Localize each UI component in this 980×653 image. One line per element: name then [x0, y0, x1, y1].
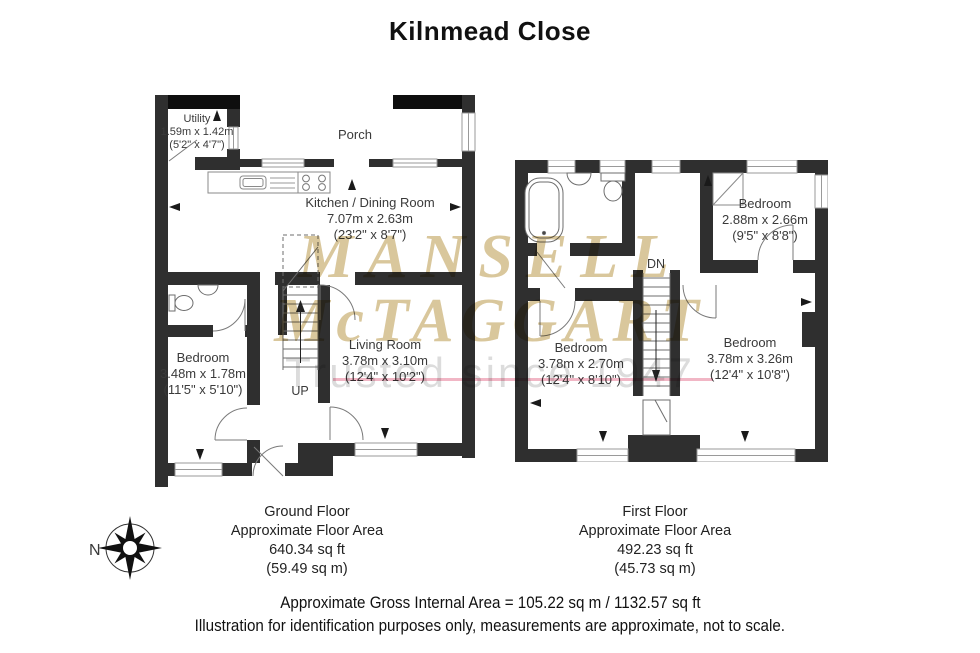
first-caption-sqm: (45.73 sq m) [500, 560, 810, 579]
ground-caption-area-label: Approximate Floor Area [152, 522, 462, 541]
first-floor-plan: Bedroom 2.88m x 2.66m (9'5" x 8'8") Bedr… [515, 160, 828, 462]
kitchen-dim-m: 7.07m x 2.63m [327, 211, 413, 226]
hob [298, 172, 330, 193]
ground-caption-title: Ground Floor [152, 503, 462, 522]
up-arrow [296, 300, 305, 312]
bathroom-fixtures [525, 173, 625, 242]
porch-label: Porch [338, 127, 372, 142]
kitchen-dim-ft: (23'2" x 8'7") [334, 227, 407, 242]
up-label: UP [291, 384, 308, 398]
dn-label: DN [647, 257, 665, 271]
utility-label: Utility [184, 113, 211, 125]
utility-dim-m: 1.59m x 1.42m [161, 126, 234, 138]
footer: Approximate Gross Internal Area = 105.22… [0, 592, 980, 638]
first-caption-sqft: 492.23 sq ft [500, 541, 810, 560]
ff-bedroom-left-label: Bedroom [555, 340, 608, 355]
watermark-underline [333, 378, 713, 381]
wash-basin [567, 173, 591, 185]
first-caption-title: First Floor [500, 503, 810, 522]
ground-floor-plan: Utility 1.59m x 1.42m (5'2" x 4'7") Porc… [155, 95, 478, 487]
first-caption-area-label: Approximate Floor Area [500, 522, 810, 541]
page-title: Kilnmead Close [0, 16, 980, 47]
ff-bedroom-top-label: Bedroom [739, 196, 792, 211]
watermark-tagline: Trusted since 1947 [0, 349, 980, 397]
gf-bedroom-label: Bedroom [177, 350, 230, 365]
kitchen-counter [208, 172, 330, 193]
toilet-first [601, 173, 625, 181]
first-floor-caption: First Floor Approximate Floor Area 492.2… [500, 503, 810, 579]
living-room-dim-ft: (12'4" x 10'2") [345, 369, 425, 384]
living-room-label: Living Room [349, 337, 421, 352]
basin [198, 285, 218, 295]
watermark-line2: McTAGGART [0, 286, 980, 357]
ground-caption-sqft: 640.34 sq ft [152, 541, 462, 560]
toilet [169, 295, 175, 311]
ground-caption-sqm: (59.49 sq m) [152, 560, 462, 579]
ff-bedroom-right-dim-ft: (12'4" x 10'8") [710, 367, 790, 382]
living-room-dim-m: 3.78m x 3.10m [342, 353, 428, 368]
ff-bedroom-top-dim-ft: (9'5" x 8'8") [732, 228, 798, 243]
utility-dim-ft: (5'2" x 4'7") [169, 139, 224, 151]
kitchen-label: Kitchen / Dining Room [305, 195, 434, 210]
ff-bedroom-right-dim-m: 3.78m x 3.26m [707, 351, 793, 366]
compass-north-label: N [89, 542, 101, 559]
gf-bedroom-dim-ft: (11'5" x 5'10") [164, 382, 243, 397]
ff-bedroom-right-label: Bedroom [724, 335, 777, 350]
ground-floor-caption: Ground Floor Approximate Floor Area 640.… [152, 503, 462, 579]
disclaimer: Illustration for identification purposes… [195, 615, 785, 638]
first-stairs [643, 273, 670, 435]
wc-fixtures [169, 285, 218, 311]
ff-bedroom-left-dim-m: 3.78m x 2.70m [538, 356, 624, 371]
gf-bedroom-dim-m: 3.48m x 1.78m [160, 366, 246, 381]
ff-bedroom-top-dim-m: 2.88m x 2.66m [722, 212, 808, 227]
gross-internal-area: Approximate Gross Internal Area = 105.22… [280, 592, 700, 615]
watermark-line1: MANSELL [0, 222, 980, 293]
